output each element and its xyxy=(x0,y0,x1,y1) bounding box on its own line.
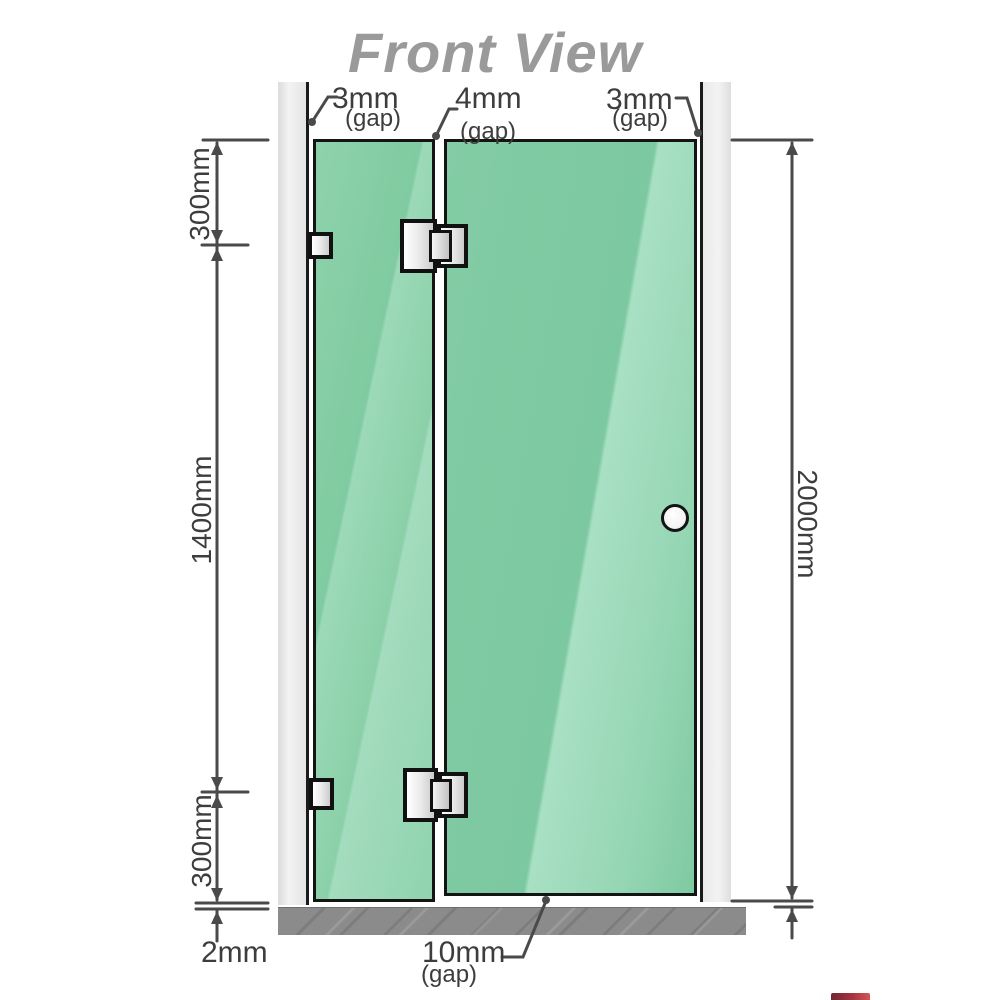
right-wall-channel xyxy=(700,82,731,902)
label-floor-clearance-2mm: 2mm xyxy=(201,936,268,970)
leader-gap-top-right xyxy=(676,98,698,133)
wall-bracket-top-icon xyxy=(308,232,333,259)
label-height-top-300: 300mm xyxy=(184,147,216,240)
page-title: Front View xyxy=(348,20,642,85)
left-wall-channel xyxy=(278,82,309,905)
label-gap-bottom-note: (gap) xyxy=(421,961,477,989)
logo-fragment xyxy=(831,993,870,1000)
label-total-height-2000: 2000mm xyxy=(791,470,823,579)
arrow-up-2mm xyxy=(211,911,223,924)
hinge-top-knuckle xyxy=(429,230,452,262)
label-height-bottom-300: 300mm xyxy=(186,794,218,887)
arrow-up-2000 xyxy=(786,142,798,155)
leader-gap-top-middle xyxy=(436,109,457,136)
wall-bracket-bottom-icon xyxy=(309,778,334,810)
arrow-up-1400 xyxy=(211,248,223,261)
arrow-down-300b xyxy=(211,888,223,901)
label-height-middle-1400: 1400mm xyxy=(186,456,218,565)
front-view-diagram: Front View xyxy=(0,0,1000,1000)
door-glass-panel xyxy=(444,139,697,896)
arrow-down-1400 xyxy=(211,777,223,790)
leader-dot-top-left xyxy=(308,118,316,126)
leader-dot-bottom xyxy=(542,896,550,904)
label-gap-top-middle-note: (gap) xyxy=(460,118,516,146)
arrow-up-floor-right xyxy=(786,909,798,922)
floor-base xyxy=(278,907,746,935)
label-gap-top-right-note: (gap) xyxy=(612,105,668,133)
hinge-bottom-knuckle xyxy=(430,779,452,812)
door-handle-knob-icon xyxy=(661,504,689,532)
label-gap-top-middle-value: 4mm xyxy=(455,82,522,116)
label-gap-top-left-note: (gap) xyxy=(345,105,401,133)
arrow-down-2000 xyxy=(786,886,798,899)
